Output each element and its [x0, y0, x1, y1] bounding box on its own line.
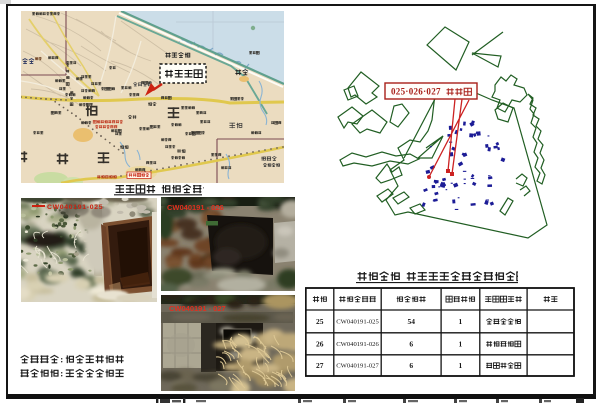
svg-text:6: 6: [409, 361, 413, 370]
svg-text:6: 6: [409, 339, 413, 348]
svg-text:CW040191-027: CW040191-027: [336, 363, 379, 370]
svg-text::: :: [60, 355, 63, 365]
svg-text:CW040191-025: CW040191-025: [336, 319, 379, 326]
svg-text:26: 26: [316, 339, 324, 348]
svg-text:025·026·027: 025·026·027: [391, 87, 441, 97]
svg-text:27: 27: [316, 361, 324, 370]
svg-text:CW040191-026: CW040191-026: [336, 341, 379, 348]
svg-text:CW040191 - 027: CW040191 - 027: [169, 304, 226, 313]
svg-text:54: 54: [407, 317, 415, 326]
svg-text:CW040191-025: CW040191-025: [47, 204, 103, 211]
svg-text:CW040191 - 026: CW040191 - 026: [167, 203, 224, 212]
svg-text:1: 1: [459, 339, 463, 348]
svg-text:1: 1: [459, 317, 463, 326]
svg-text::: :: [60, 369, 63, 379]
svg-text:1: 1: [459, 361, 463, 370]
svg-text:25: 25: [316, 317, 324, 326]
